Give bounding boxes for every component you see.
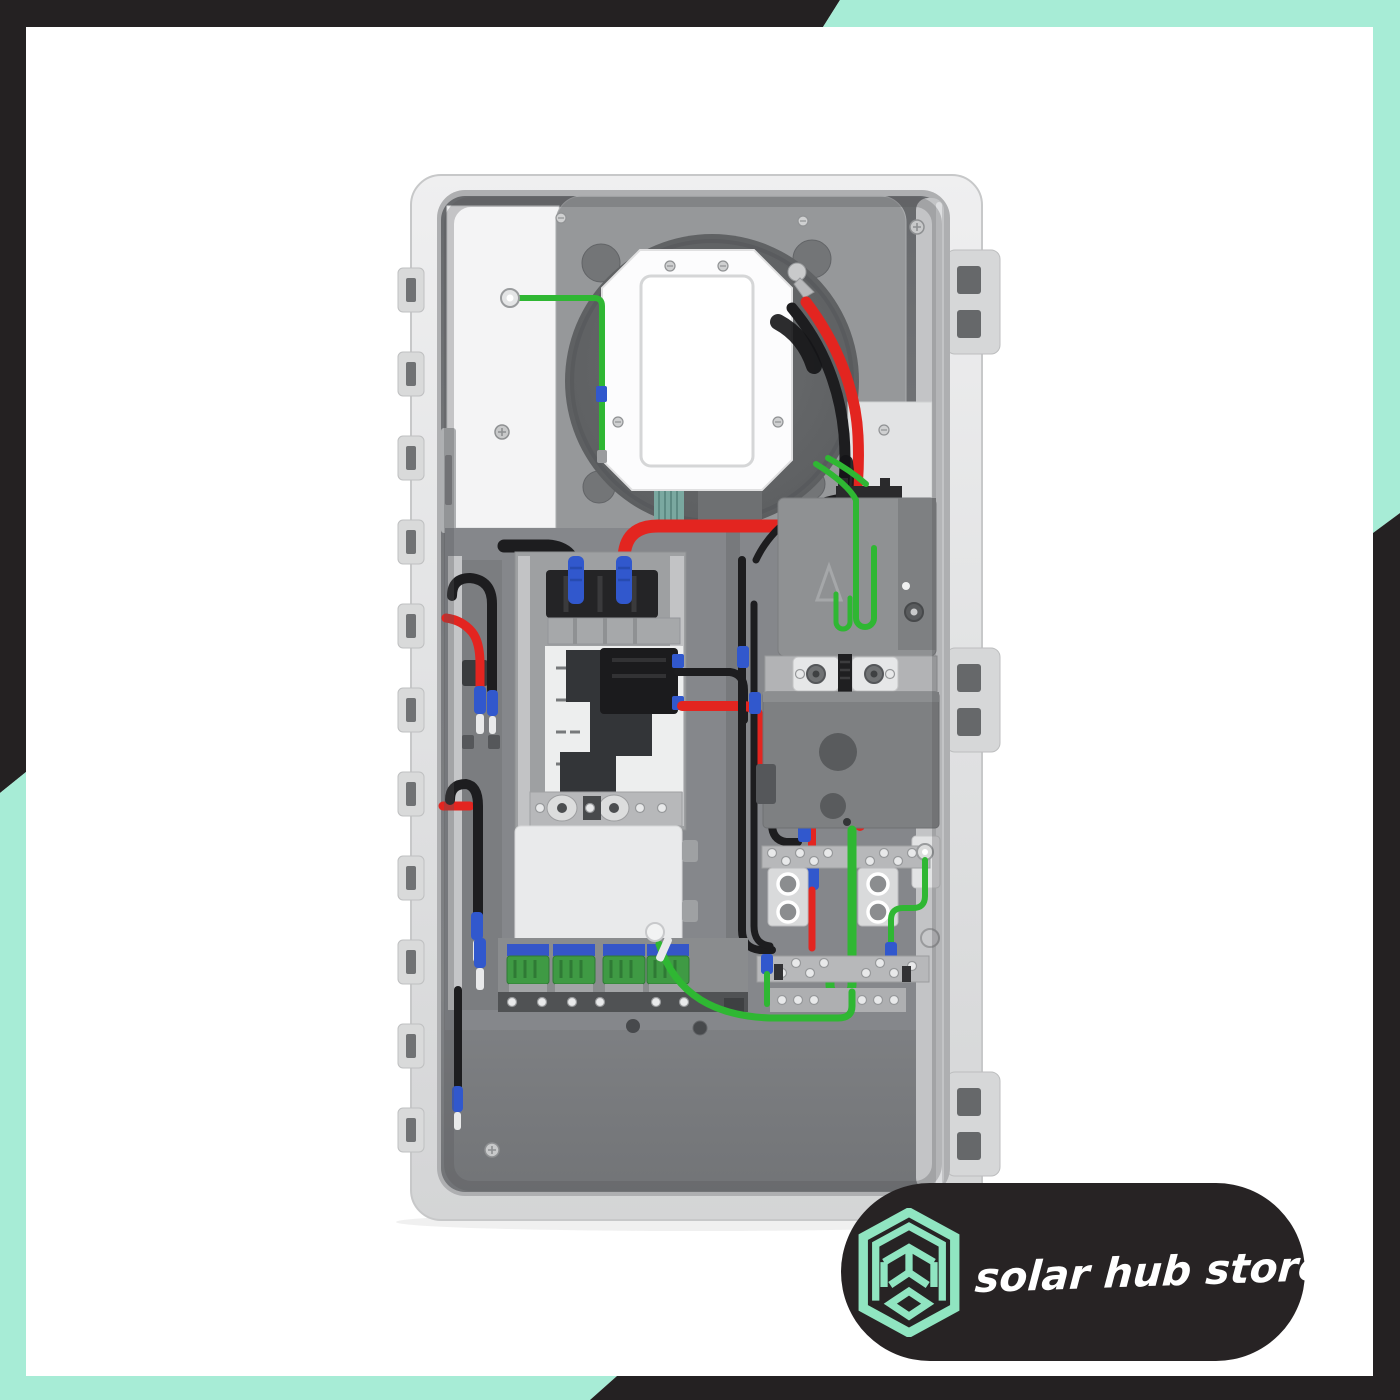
product-listing-image: solar hub store [0, 0, 1400, 1400]
ground-busbar-2 [770, 988, 906, 1012]
cable-tie-stud [646, 923, 664, 941]
frame-left-teal [0, 772, 26, 1400]
brand-name: solar hub store [973, 1242, 1327, 1302]
terminal-block [553, 944, 595, 996]
ground-busbar [757, 956, 929, 982]
lug-strip [530, 792, 682, 826]
neutral-busbar [762, 846, 930, 868]
meter-cover-plate [602, 250, 814, 490]
frame-bottom-teal [0, 1376, 617, 1400]
product-render [396, 175, 1000, 1231]
frame-right-black [1373, 513, 1400, 1400]
terminal-block [603, 944, 645, 996]
terminal-block [507, 944, 549, 996]
frame-top-teal [823, 0, 1400, 27]
brand-badge: solar hub store [841, 1183, 1305, 1361]
frame-bottom-black [590, 1376, 1400, 1400]
hexagon-cube-icon [857, 1208, 961, 1337]
frame-right-teal [1373, 27, 1400, 533]
upper-left-panel [441, 206, 559, 533]
frame-top-black [0, 0, 840, 27]
main-breaker [600, 648, 678, 714]
frame-left-black [0, 0, 26, 793]
center-channel [726, 532, 740, 1002]
contactor-lugs [765, 654, 937, 692]
contactor-box [756, 458, 939, 828]
